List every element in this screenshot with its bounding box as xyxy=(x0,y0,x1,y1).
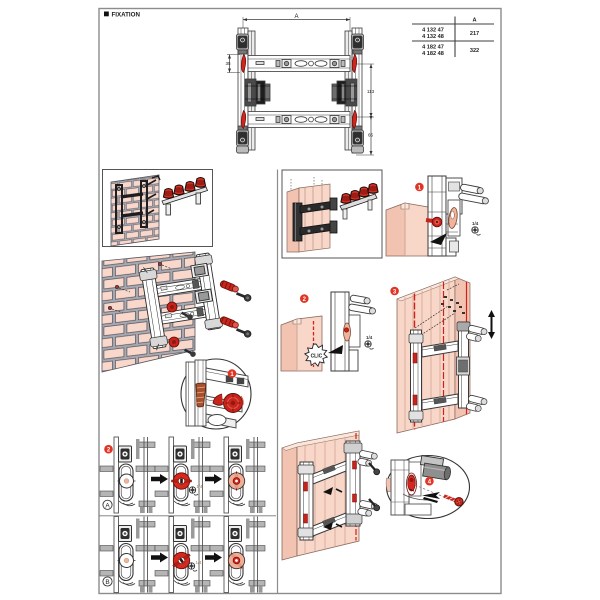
svg-text:CLIC: CLIC xyxy=(311,354,323,360)
svg-text:4 132 48: 4 132 48 xyxy=(422,34,444,40)
svg-text:1/4: 1/4 xyxy=(366,335,373,340)
svg-text:A: A xyxy=(472,18,476,24)
svg-text:322: 322 xyxy=(470,48,479,54)
svg-text:4 182 48: 4 182 48 xyxy=(422,51,444,57)
svg-text:1/4: 1/4 xyxy=(472,221,479,226)
svg-text:65: 65 xyxy=(368,133,374,138)
svg-text:1/4: 1/4 xyxy=(196,560,202,565)
svg-text:113: 113 xyxy=(367,89,375,94)
svg-text:A: A xyxy=(105,502,110,509)
svg-text:1/4: 1/4 xyxy=(197,484,203,489)
svg-text:FIXATION: FIXATION xyxy=(112,11,141,18)
svg-text:217: 217 xyxy=(470,31,479,37)
svg-text:B: B xyxy=(105,579,109,586)
svg-text:A: A xyxy=(294,14,298,20)
svg-text:4 182 47: 4 182 47 xyxy=(422,45,444,51)
svg-text:4 132 47: 4 132 47 xyxy=(422,28,444,34)
svg-text:35: 35 xyxy=(225,61,231,66)
